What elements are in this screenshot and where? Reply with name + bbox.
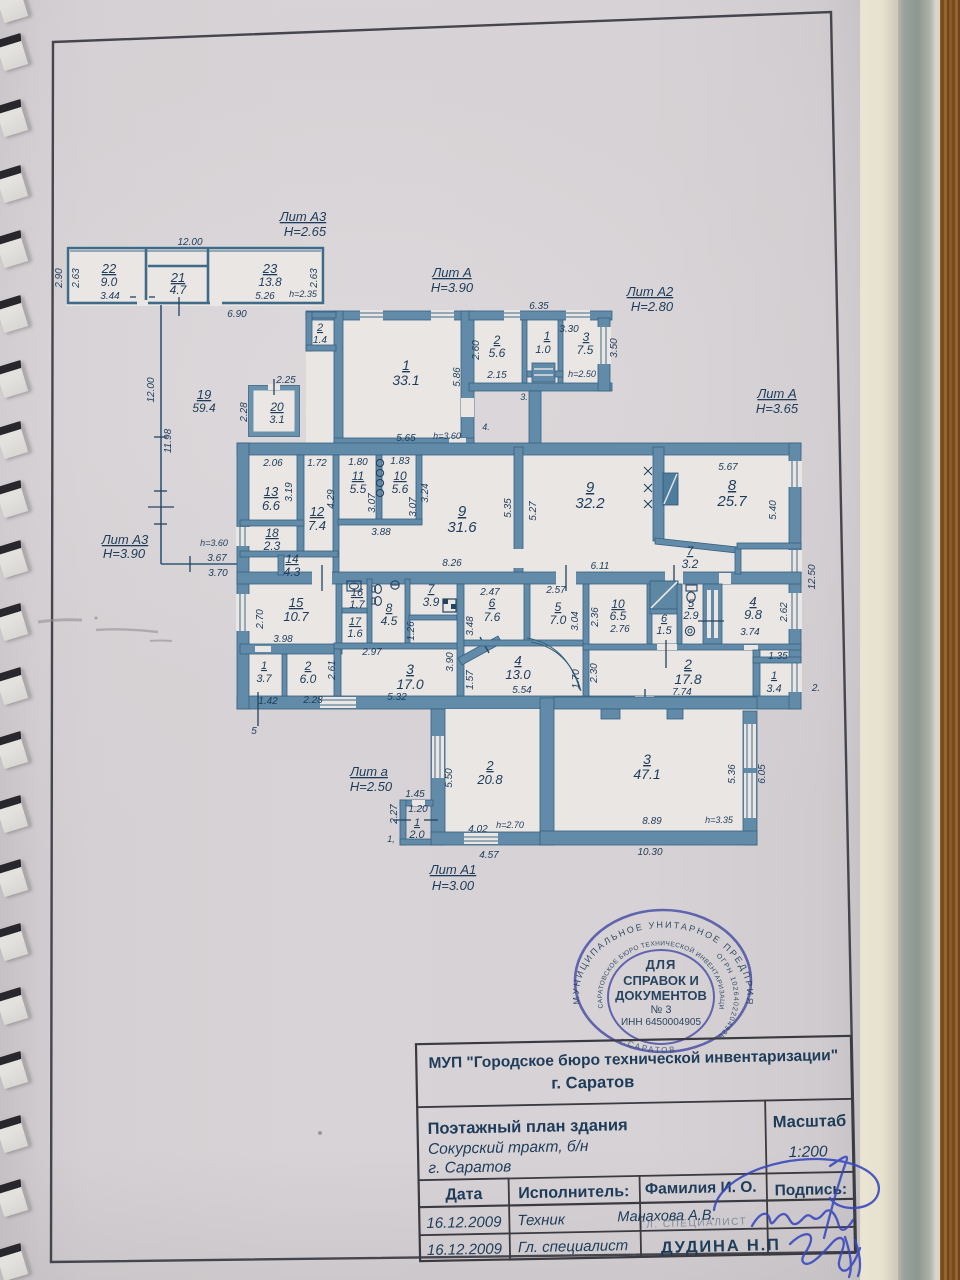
svg-text:6.11: 6.11 — [591, 561, 610, 572]
svg-text:1.5: 1.5 — [656, 625, 672, 637]
svg-text:2.: 2. — [811, 683, 820, 694]
svg-text:2.0: 2.0 — [408, 829, 425, 841]
svg-text:Масштаб: Масштаб — [773, 1112, 847, 1131]
svg-text:6.90: 6.90 — [227, 309, 247, 320]
svg-text:3.24: 3.24 — [420, 483, 431, 503]
svg-text:7.74: 7.74 — [672, 687, 692, 698]
svg-text:1.57: 1.57 — [465, 670, 476, 690]
svg-text:3.9: 3.9 — [423, 595, 440, 609]
svg-text:1.83: 1.83 — [390, 456, 410, 467]
svg-text:1: 1 — [402, 357, 410, 373]
svg-text:Н=2.80: Н=2.80 — [631, 299, 674, 314]
svg-text:2.3: 2.3 — [263, 539, 281, 553]
svg-text:4.3: 4.3 — [284, 565, 301, 579]
svg-text:12.50: 12.50 — [807, 564, 818, 589]
svg-text:5.36: 5.36 — [727, 764, 738, 784]
svg-text:2.76: 2.76 — [609, 624, 630, 635]
svg-text:2.63: 2.63 — [309, 268, 320, 289]
svg-text:3: 3 — [406, 661, 414, 677]
svg-text:1.70: 1.70 — [571, 669, 582, 689]
svg-text:1: 1 — [771, 670, 777, 682]
svg-text:2: 2 — [316, 322, 323, 334]
svg-text:3.4: 3.4 — [766, 683, 781, 695]
svg-text:Исполнитель:: Исполнитель: — [518, 1183, 629, 1202]
svg-text:3.50: 3.50 — [609, 338, 620, 358]
svg-text:h=3.60: h=3.60 — [433, 431, 461, 441]
svg-text:13: 13 — [264, 484, 279, 499]
svg-text:11: 11 — [352, 469, 364, 483]
svg-text:Н=2.50: Н=2.50 — [350, 779, 393, 794]
svg-text:20: 20 — [269, 400, 284, 414]
svg-text:5.32: 5.32 — [387, 692, 407, 703]
svg-text:10.30: 10.30 — [637, 847, 662, 858]
svg-text:2.28: 2.28 — [239, 402, 250, 423]
svg-text:1: 1 — [544, 329, 551, 343]
svg-text:13.0: 13.0 — [505, 667, 531, 682]
svg-text:5.65: 5.65 — [396, 433, 416, 444]
svg-text:5.5: 5.5 — [350, 482, 367, 496]
svg-text:3.44: 3.44 — [100, 291, 120, 302]
svg-text:6.6: 6.6 — [262, 498, 281, 513]
svg-text:5.27: 5.27 — [528, 501, 539, 521]
svg-text:4.5: 4.5 — [381, 614, 398, 628]
svg-text:ДЛЯ: ДЛЯ — [646, 957, 677, 972]
svg-text:4.02: 4.02 — [468, 824, 488, 835]
svg-text:Фамилия И. О.: Фамилия И. О. — [645, 1179, 757, 1198]
svg-text:9.8: 9.8 — [744, 607, 763, 622]
svg-text:23: 23 — [262, 261, 278, 276]
svg-text:3.88: 3.88 — [371, 527, 391, 538]
svg-text:2.63: 2.63 — [71, 268, 82, 289]
svg-text:9: 9 — [586, 479, 595, 496]
svg-text:Техник: Техник — [517, 1211, 566, 1229]
svg-text:1.26: 1.26 — [406, 621, 417, 641]
svg-text:5.6: 5.6 — [489, 346, 506, 360]
svg-text:17.8: 17.8 — [674, 671, 701, 687]
svg-text:Дата: Дата — [445, 1186, 482, 1204]
svg-text:3.19: 3.19 — [284, 482, 295, 502]
svg-text:2: 2 — [683, 656, 692, 672]
svg-text:17: 17 — [349, 616, 362, 628]
svg-text:4.: 4. — [482, 422, 490, 432]
svg-text:2.61: 2.61 — [327, 660, 338, 680]
svg-text:Лит а: Лит а — [349, 764, 388, 779]
svg-text:16.12.2009: 16.12.2009 — [426, 1214, 502, 1232]
svg-text:13.8: 13.8 — [258, 275, 282, 289]
svg-text:г. Саратов: г. Саратов — [551, 1073, 634, 1093]
svg-text:6.0: 6.0 — [300, 672, 317, 686]
svg-text:3: 3 — [643, 751, 651, 767]
svg-text:6: 6 — [661, 613, 668, 625]
svg-text:3.67: 3.67 — [207, 553, 227, 564]
svg-text:Поэтажный план здания: Поэтажный план здания — [427, 1116, 627, 1138]
svg-text:33.1: 33.1 — [392, 372, 419, 388]
svg-text:1.35: 1.35 — [768, 651, 788, 662]
svg-text:№ 3: № 3 — [651, 1004, 672, 1016]
svg-text:5.67: 5.67 — [718, 462, 738, 473]
svg-text:1.0: 1.0 — [535, 344, 551, 356]
svg-text:5.40: 5.40 — [768, 500, 779, 520]
svg-text:4.7: 4.7 — [170, 283, 188, 297]
svg-text:МУП "Городское бюро техническо: МУП "Городское бюро технической инвентар… — [428, 1047, 838, 1072]
svg-text:1.72: 1.72 — [307, 458, 327, 469]
svg-text:16.12.2009: 16.12.2009 — [427, 1241, 503, 1259]
svg-text:2.30: 2.30 — [589, 663, 600, 684]
svg-text:3.48: 3.48 — [465, 616, 476, 636]
svg-text:1: 1 — [261, 660, 267, 672]
svg-text:9: 9 — [458, 503, 467, 520]
svg-text:7.6: 7.6 — [484, 610, 501, 624]
svg-text:5.86: 5.86 — [452, 367, 463, 387]
svg-text:Н=3.65: Н=3.65 — [756, 401, 799, 416]
svg-text:ДУДИНА Н.П: ДУДИНА Н.П — [661, 1236, 781, 1257]
svg-text:3.04: 3.04 — [570, 611, 581, 631]
svg-text:2.57: 2.57 — [545, 585, 566, 596]
svg-text:10.7: 10.7 — [283, 609, 309, 624]
svg-text:3.07: 3.07 — [408, 497, 419, 517]
svg-text:5.6: 5.6 — [392, 482, 409, 496]
svg-text:11.98: 11.98 — [163, 428, 174, 453]
svg-text:г. Саратов: г. Саратов — [428, 1158, 511, 1177]
svg-text:h=3.35: h=3.35 — [705, 815, 734, 825]
svg-text:1.20: 1.20 — [408, 804, 428, 815]
svg-text:8.89: 8.89 — [642, 816, 662, 827]
svg-text:17.0: 17.0 — [396, 676, 423, 692]
svg-text:3.7: 3.7 — [256, 673, 272, 685]
svg-text:31.6: 31.6 — [447, 519, 477, 536]
svg-text:h=2.35: h=2.35 — [289, 289, 318, 299]
svg-text:3.90: 3.90 — [445, 652, 456, 672]
svg-text:h=3.60: h=3.60 — [200, 538, 228, 548]
svg-text:2.15: 2.15 — [486, 370, 507, 381]
svg-text:Лит А: Лит А — [431, 265, 471, 280]
svg-text:1: 1 — [414, 817, 420, 829]
svg-text:Н=3.00: Н=3.00 — [432, 878, 475, 893]
svg-text:h=2.70: h=2.70 — [496, 820, 524, 830]
svg-text:3: 3 — [583, 330, 590, 344]
svg-text:Н=2.65: Н=2.65 — [284, 224, 327, 239]
svg-text:22: 22 — [101, 261, 117, 276]
svg-text:3.: 3. — [520, 392, 528, 402]
svg-text:h=2.50: h=2.50 — [568, 369, 596, 379]
svg-text:16: 16 — [351, 587, 364, 599]
svg-text:5: 5 — [688, 598, 695, 610]
svg-text:5.50: 5.50 — [444, 768, 455, 788]
svg-text:2.90: 2.90 — [54, 268, 65, 289]
svg-text:9.0: 9.0 — [101, 275, 118, 289]
svg-text:4.57: 4.57 — [479, 850, 499, 861]
svg-text:19: 19 — [197, 387, 211, 402]
svg-text:1.6: 1.6 — [347, 628, 363, 640]
svg-text:Н=3.90: Н=3.90 — [103, 546, 146, 561]
svg-text:3.98: 3.98 — [273, 634, 293, 645]
svg-text:2.62: 2.62 — [779, 602, 790, 623]
svg-text:4.29: 4.29 — [326, 489, 337, 509]
svg-text:2.47: 2.47 — [479, 587, 500, 598]
svg-text:2: 2 — [493, 333, 501, 347]
svg-text:4: 4 — [514, 653, 521, 668]
svg-text:6.05: 6.05 — [757, 764, 768, 784]
svg-text:СПРАВОК И: СПРАВОК И — [623, 973, 699, 988]
svg-text:Лит А1: Лит А1 — [429, 862, 476, 877]
svg-text:1.7: 1.7 — [349, 599, 365, 611]
svg-text:3.74: 3.74 — [740, 627, 760, 638]
svg-text:8: 8 — [728, 477, 737, 494]
svg-text:15: 15 — [289, 595, 304, 610]
svg-text:2: 2 — [485, 758, 494, 773]
svg-text:2.97: 2.97 — [361, 647, 382, 658]
svg-text:32.2: 32.2 — [575, 495, 605, 512]
svg-text:2.28: 2.28 — [302, 695, 323, 706]
svg-text:3.70: 3.70 — [208, 568, 228, 579]
svg-text:6.35: 6.35 — [529, 301, 549, 312]
svg-text:1,: 1, — [387, 834, 395, 844]
svg-text:2.36: 2.36 — [590, 607, 601, 628]
svg-text:Н=3.90: Н=3.90 — [431, 280, 474, 295]
svg-text:2.70: 2.70 — [255, 609, 266, 630]
svg-text:12.00: 12.00 — [146, 377, 157, 402]
svg-text:1.42: 1.42 — [258, 696, 278, 707]
svg-text:2.60: 2.60 — [471, 340, 482, 361]
svg-text:2.06: 2.06 — [262, 458, 283, 469]
svg-text:2.25: 2.25 — [275, 375, 296, 386]
svg-text:8: 8 — [386, 601, 393, 615]
svg-text:6: 6 — [489, 596, 496, 610]
svg-text:7.0: 7.0 — [550, 613, 567, 627]
svg-text:59.4: 59.4 — [192, 401, 216, 415]
svg-text:5.54: 5.54 — [512, 685, 532, 696]
svg-text:Гл. специалист: Гл. специалист — [518, 1237, 629, 1256]
svg-text:3.30: 3.30 — [559, 324, 579, 335]
svg-text:Лит А2: Лит А2 — [626, 284, 674, 299]
svg-text:2.27: 2.27 — [389, 804, 400, 825]
svg-text:3.1: 3.1 — [269, 414, 284, 426]
svg-text:1.80: 1.80 — [348, 457, 368, 468]
svg-text:Сокурский тракт, б/н: Сокурский тракт, б/н — [428, 1138, 589, 1158]
svg-text:7.5: 7.5 — [577, 343, 594, 357]
svg-text:Лит А: Лит А — [756, 386, 796, 401]
svg-text:2: 2 — [304, 659, 312, 673]
svg-text:6.5: 6.5 — [610, 609, 627, 623]
svg-text:20.8: 20.8 — [476, 772, 503, 787]
svg-text:3.2: 3.2 — [682, 557, 699, 571]
svg-text:ИНН 6450004905: ИНН 6450004905 — [621, 1017, 701, 1028]
svg-text:18: 18 — [265, 526, 279, 540]
svg-text:12.00: 12.00 — [177, 237, 202, 248]
svg-text:1.4: 1.4 — [313, 335, 327, 346]
svg-text:5: 5 — [251, 726, 257, 737]
svg-text:14: 14 — [285, 552, 299, 566]
svg-text:5: 5 — [555, 600, 562, 614]
svg-text:5.35: 5.35 — [503, 498, 514, 518]
svg-text:5.26: 5.26 — [255, 291, 275, 302]
svg-text:3.07: 3.07 — [367, 493, 378, 513]
svg-text:25.7: 25.7 — [716, 493, 747, 510]
svg-text:2.9: 2.9 — [682, 610, 698, 622]
svg-text:Лит А3: Лит А3 — [101, 532, 149, 547]
svg-text:Лит А3: Лит А3 — [279, 209, 327, 224]
svg-text:10: 10 — [393, 469, 407, 483]
svg-text:ДОКУМЕНТОВ: ДОКУМЕНТОВ — [615, 988, 707, 1003]
svg-text:1.45: 1.45 — [405, 789, 425, 800]
svg-text:12: 12 — [310, 504, 325, 519]
svg-text:8.26: 8.26 — [442, 558, 462, 569]
svg-text:47.1: 47.1 — [633, 766, 660, 782]
svg-text:7.4: 7.4 — [308, 518, 326, 533]
